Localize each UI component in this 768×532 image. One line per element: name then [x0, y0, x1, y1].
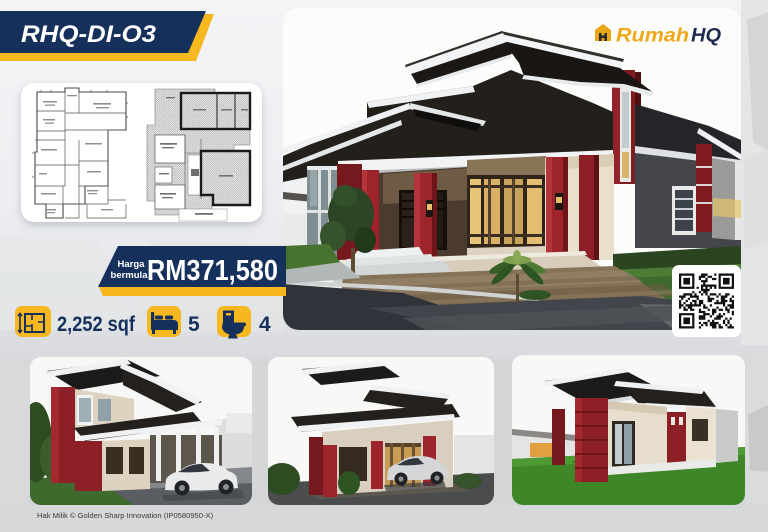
svg-text:4: 4 [259, 313, 271, 336]
svg-text:RM371,580: RM371,580 [147, 255, 278, 287]
svg-text:RHQ-DI-O3: RHQ-DI-O3 [21, 21, 157, 48]
svg-text:bermula: bermula [111, 270, 149, 281]
svg-text:HQ: HQ [691, 25, 721, 47]
svg-text:Harga: Harga [118, 259, 146, 270]
svg-text:Rumah: Rumah [616, 25, 689, 47]
svg-text:5: 5 [188, 313, 200, 336]
svg-text:2,252 sqf: 2,252 sqf [57, 313, 136, 336]
